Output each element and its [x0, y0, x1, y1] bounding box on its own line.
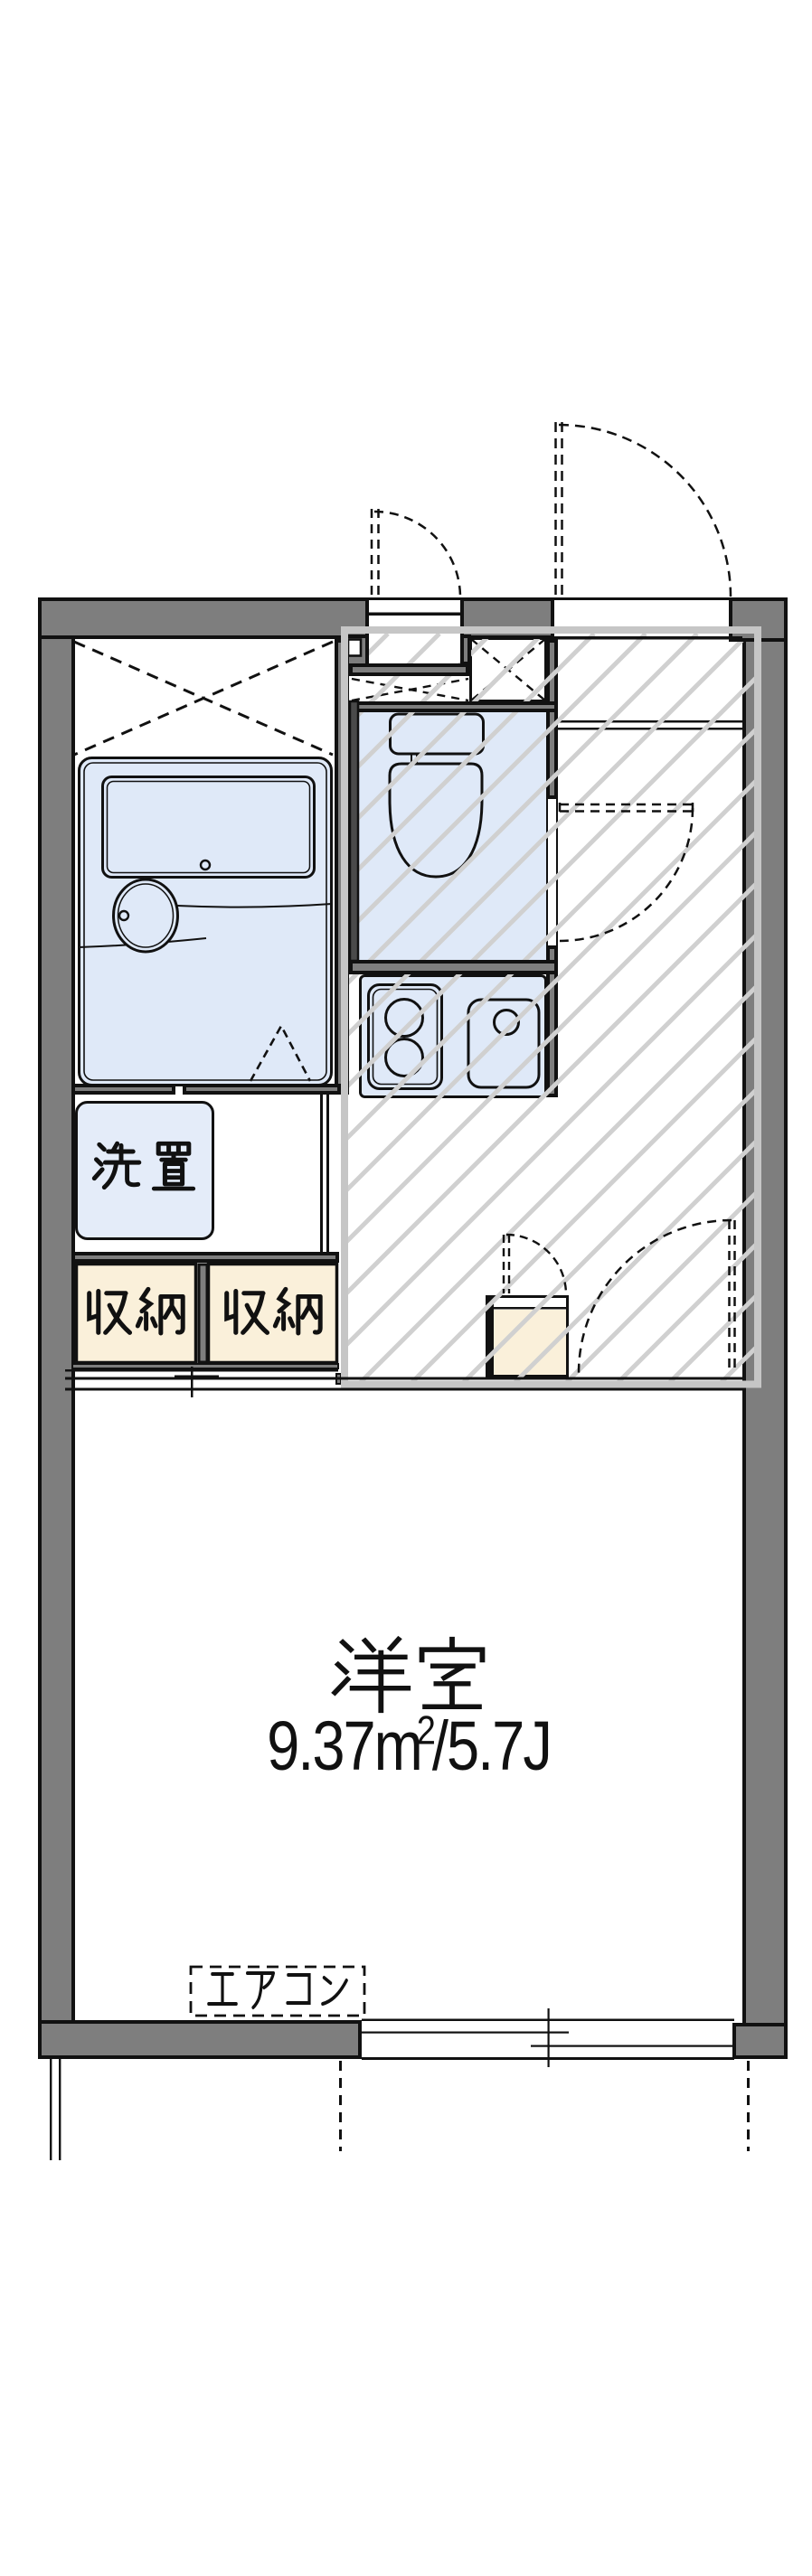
svg-text:9.37m2/5.7J: 9.37m2/5.7J: [267, 1707, 551, 1786]
